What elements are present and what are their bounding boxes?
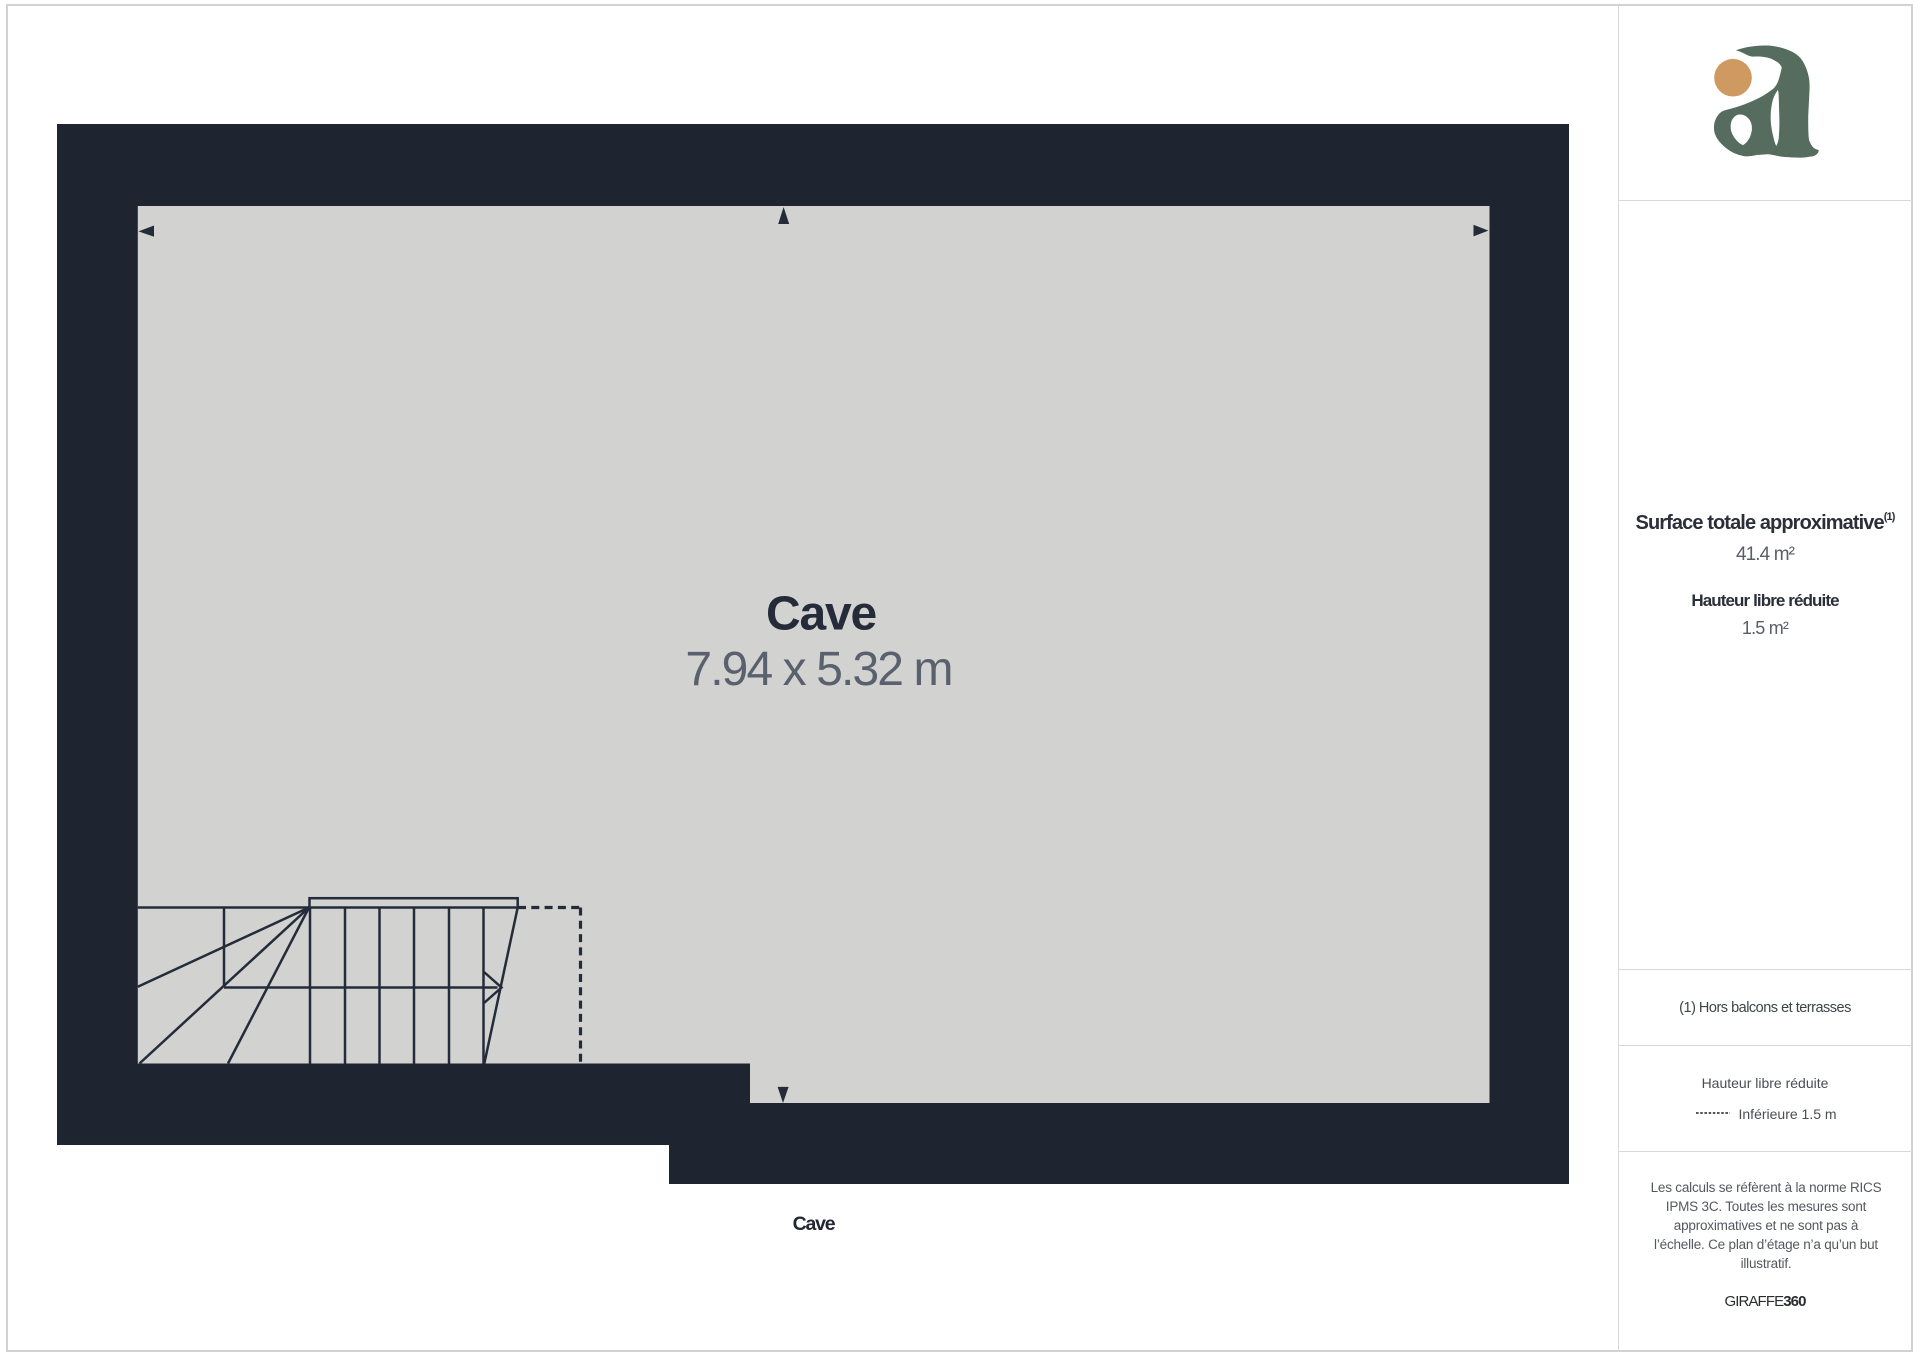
svg-text:Cave: Cave (793, 1213, 836, 1235)
svg-text:Cave: Cave (766, 588, 876, 641)
svg-text:7.94 x 5.32 m: 7.94 x 5.32 m (685, 643, 951, 696)
